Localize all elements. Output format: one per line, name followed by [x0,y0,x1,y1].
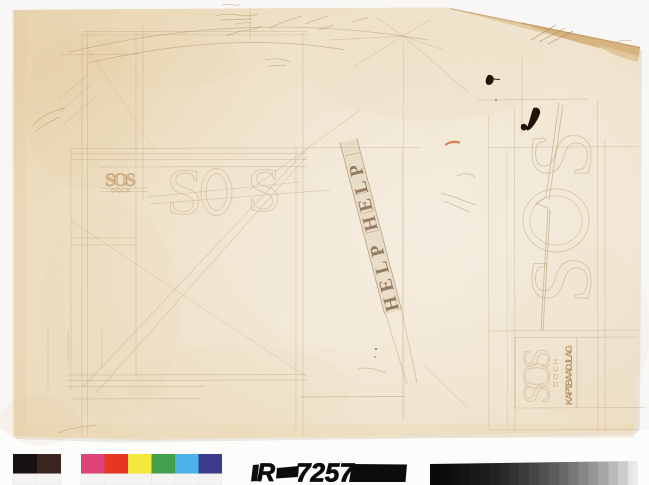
svg-text:S: S [513,130,610,179]
svg-text:S: S [166,156,203,229]
svg-text:7257: 7257 [296,458,355,485]
svg-text:DOCK: DOCK [111,188,131,195]
svg-text:DOCH: DOCH [551,357,560,387]
svg-text:S: S [247,157,281,225]
svg-text:KAPT.BAADJLAG: KAPT.BAADJLAG [564,345,575,405]
svg-text:R: R [257,459,275,485]
svg-text:S: S [513,255,610,304]
